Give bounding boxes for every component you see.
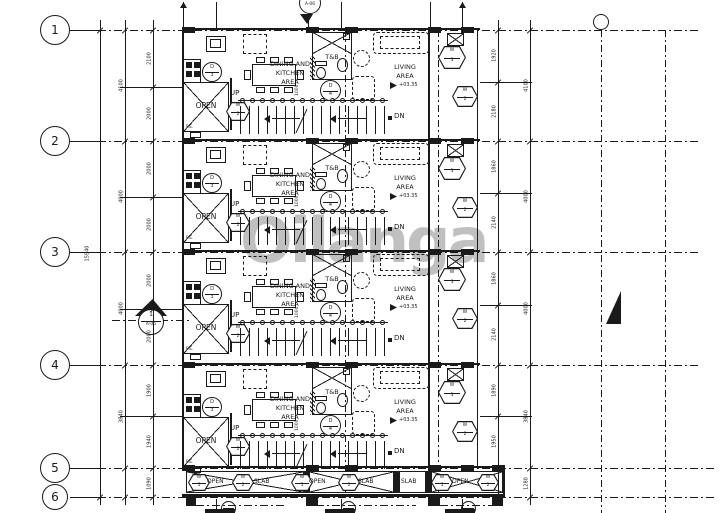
grid-bubble-label-6: 6: [42, 491, 68, 503]
unit1-down-marker: [388, 116, 392, 120]
unit3-baluster-icon: [280, 320, 285, 325]
unit4-refrigerator: [243, 369, 267, 389]
unit2-condenser-unit: [447, 144, 464, 157]
unit1-stair-tread: [258, 106, 259, 134]
unit1-baluster-icon: [270, 98, 275, 103]
strip-window-symbol-w2-letter: W: [477, 476, 499, 481]
unit2-armchair: [352, 187, 375, 211]
unit3-stair-tread: [366, 328, 367, 356]
strip-window-symbol-w5-number: 5: [431, 484, 453, 489]
dim-right-split: 1950: [493, 422, 498, 462]
unit3-door-symbol-d3-letter: D: [202, 287, 222, 292]
unit1-stair-tread: [348, 106, 349, 134]
lower-dashed-line: [316, 505, 416, 506]
unit3-baluster-icon: [290, 320, 295, 325]
strip-open-label: OPEN: [452, 479, 469, 485]
unit3-stair-tread: [258, 328, 259, 356]
unit4-baluster-icon: [300, 433, 305, 438]
unit4-toilet-bath-label: T&B: [312, 389, 352, 396]
unit2-stair-tread: [348, 217, 349, 245]
unit4-window-symbol-w2b-number: 2: [452, 433, 478, 438]
unit2-door-symbol-d3-number: 3: [202, 184, 222, 189]
unit1-living-label: LIVING: [374, 64, 436, 71]
unit3-stair-tread: [339, 328, 340, 356]
unit2-baluster-icon: [310, 209, 315, 214]
unit2-fire-exit-label: F.E.: [186, 237, 194, 242]
unit1-window-symbol-w2b-number: 2: [452, 98, 478, 103]
dimension-line: [100, 20, 101, 505]
unit4-dining-label: AREA: [246, 414, 334, 421]
lower-dashed-line: [196, 505, 286, 506]
unit2-window-symbol-w2-letter: W: [226, 215, 250, 220]
unit4-stair-tread: [285, 441, 286, 469]
unit4-stair-tread: [366, 441, 367, 469]
unit1-bed-mattress: [380, 36, 420, 49]
unit2-stair-tread: [366, 217, 367, 245]
unit2-chair: [256, 198, 265, 204]
unit2-window-symbol-w2-number: 2: [226, 224, 250, 229]
strip-open-label: OPEN: [309, 479, 326, 485]
unit2-stove-burner-icon: [194, 182, 200, 188]
unit3-baluster-icon: [340, 320, 345, 325]
unit2-dining-label: AREA: [246, 190, 334, 197]
dim-overall-left: 15940: [86, 233, 91, 273]
column-grid-line: [438, 30, 439, 497]
unit4-dining-label: DINING AND: [246, 396, 334, 403]
grid-line-stub: [70, 365, 98, 366]
unit3-baluster-icon: [380, 320, 385, 325]
strip-window-symbol-w2-number: 2: [477, 484, 499, 489]
unit1-stove-burner-icon: [186, 71, 192, 77]
unit3-window-symbol-w2b-number: 2: [452, 320, 478, 325]
unit1-down-label: DN: [394, 113, 405, 120]
unit2-stair-tread: [312, 217, 313, 245]
lower-wall-segment: [445, 509, 475, 513]
arrow-up-icon: [459, 2, 466, 8]
dim-right-total: 4000: [525, 289, 530, 329]
unit2-elevation-marker-icon: [390, 193, 397, 200]
strip-slab-wall: [182, 466, 505, 468]
dim-left-total: 4000: [120, 289, 125, 329]
dim-left-split: 2000: [148, 94, 153, 134]
floor-plan-canvas: Oilanga 123456A-061A-0515940210020004100…: [0, 0, 727, 513]
grid-line-stub: [70, 497, 98, 498]
unit4-open-label: OPEN: [183, 437, 229, 445]
dim-right-bottom: 1280: [525, 463, 530, 503]
unit4-down-marker: [388, 451, 392, 455]
unit2-baluster-icon: [240, 209, 245, 214]
unit4-door-symbol-d3-number: 3: [202, 408, 222, 413]
unit3-stair-tread: [276, 328, 277, 356]
unit2-window-symbol-w3-number: 3: [438, 170, 466, 175]
section-marker-top-sheet: A-06: [299, 3, 321, 8]
unit1-open-label: OPEN: [183, 102, 229, 110]
unit2-stove-burner-icon: [186, 182, 192, 188]
dim-left-total: 3840: [120, 397, 125, 437]
strip-outer-wall: [182, 494, 505, 497]
strip-window-symbol-w5-letter: W: [431, 476, 453, 481]
unit3-stair-arrow-stem: [272, 340, 300, 341]
unit1-stair-tread: [357, 106, 358, 134]
unit2-living-label: LIVING: [374, 175, 436, 182]
strip-slab-label: SLAB: [254, 479, 270, 485]
unit2-baluster-icon: [280, 209, 285, 214]
unit4-baluster-icon: [270, 433, 275, 438]
section-marker-top-arrow-icon: [300, 14, 313, 24]
unit4-stair-arrow-stem: [272, 453, 300, 454]
unit1-dining-label: DINING AND: [246, 61, 334, 68]
unit2-open-label: OPEN: [183, 213, 229, 221]
dim-right-split: 1890: [493, 370, 498, 410]
unit1-baluster-icon: [340, 98, 345, 103]
unit4-window-symbol-w3-number: 3: [438, 394, 466, 399]
unit3-stair-tread: [330, 328, 331, 356]
unit1-condenser-unit: [447, 33, 464, 46]
unit4-stair-tread: [240, 441, 241, 469]
unit1-dining-label: KITCHEN: [246, 70, 334, 77]
unit4-armchair: [352, 411, 375, 435]
strip-slab-label: SLAB: [358, 479, 374, 485]
unit1-baluster-icon: [290, 98, 295, 103]
unit1-baluster-icon: [250, 98, 255, 103]
dimension-line: [153, 20, 154, 505]
unit3-stove-burner-icon: [186, 293, 192, 299]
unit4-baluster-icon: [380, 433, 385, 438]
unit3-armchair: [352, 298, 375, 322]
unit4-stove-burner-icon: [194, 397, 200, 403]
grid-line-stub: [70, 30, 98, 31]
unit3-stair-tread: [375, 328, 376, 356]
unit3-elevation-label: +03.35: [399, 305, 418, 310]
unit2-down-label: DN: [394, 224, 405, 231]
unit2-side-table: [353, 161, 370, 178]
strip-window-symbol-w2-letter: W: [232, 476, 254, 481]
unit1-stove-burner-icon: [194, 62, 200, 68]
unit4-stair-tread: [258, 441, 259, 469]
unit1-stair-tread: [339, 106, 340, 134]
dim-right-total: 3840: [525, 397, 530, 437]
unit4-chair: [284, 422, 293, 428]
unit1-toilet-bath-label: T&B: [312, 54, 352, 61]
unit1-window-symbol-w2-letter: W: [226, 104, 250, 109]
unit2-elevation-label: +03.35: [399, 194, 418, 199]
unit2-window-symbol-w2b-letter: W: [452, 200, 478, 205]
section-arrow-right-icon: [606, 291, 621, 324]
unit2-stair-arrow-stem: [338, 229, 366, 230]
unit4-baluster-icon: [290, 433, 295, 438]
dim-left-split: 1940: [148, 422, 153, 462]
unit1-door-symbol-d3-letter: D: [202, 65, 222, 70]
unit1-stove-burner-icon: [186, 62, 192, 68]
lower-column-block: [186, 497, 196, 506]
unit4-stove-burner-icon: [194, 406, 200, 412]
unit3-stair-tread: [384, 328, 385, 356]
wall-extension-line: [216, 2, 217, 28]
unit3-balcony-edge: [477, 252, 478, 365]
dim-left-bottom: 1090: [148, 463, 153, 503]
unit1-stair-tread: [375, 106, 376, 134]
unit3-up-label: UP: [230, 312, 239, 319]
unit4-balcony-edge: [477, 365, 478, 468]
unit2-baluster-icon: [290, 209, 295, 214]
unit2-stair-tread: [384, 217, 385, 245]
unit2-chair: [270, 198, 279, 204]
unit4-window-symbol-w2-number: 2: [226, 448, 250, 453]
unit2-dining-label: DINING AND: [246, 172, 334, 179]
unit4-baluster-icon: [310, 433, 315, 438]
unit2-kitchen-sink-basin: [210, 150, 221, 159]
unit4-elevation-marker-icon: [390, 417, 397, 424]
unit3-down-marker: [388, 338, 392, 342]
unit1-elevation-marker-icon: [390, 82, 397, 89]
unit1-baluster-icon: [240, 98, 245, 103]
unit3-baluster-icon: [250, 320, 255, 325]
wall-extension-line: [430, 2, 431, 28]
unit4-condenser-unit: [447, 368, 464, 381]
grid-bubble-label-2: 2: [40, 135, 70, 147]
unit4-baluster-icon: [280, 433, 285, 438]
unit2-stair-tread: [240, 217, 241, 245]
column-grid-line: [601, 30, 602, 513]
unit2-baluster-icon: [340, 209, 345, 214]
unit1-stair-arrow-stem: [272, 118, 300, 119]
grid-line-stub: [70, 141, 98, 142]
unit4-living-label: LIVING: [374, 399, 436, 406]
unit1-stair-tread: [384, 106, 385, 134]
strip-window-symbol-w2-number: 2: [232, 484, 254, 489]
unit3-baluster-icon: [260, 320, 265, 325]
strip-slab-label: SLAB: [401, 479, 417, 485]
unit1-stair-tread: [276, 106, 277, 134]
unit3-door-symbol-d3-number: 3: [202, 295, 222, 300]
unit1-stair-tread: [312, 106, 313, 134]
unit3-dining-label: AREA: [246, 301, 334, 308]
unit1-window-symbol-w3-letter: W: [438, 49, 466, 54]
dim-right-split: 1860: [493, 258, 498, 298]
unit4-stair-tread: [375, 441, 376, 469]
unit4-bed-mattress: [380, 371, 420, 384]
dim-right-total: 4000: [525, 177, 530, 217]
unit4-up-label: UP: [230, 425, 239, 432]
unit2-stair-tread: [357, 217, 358, 245]
unit2-chair: [284, 198, 293, 204]
dim-left-split: 2000: [148, 149, 153, 189]
unit1-stair-tread: [240, 106, 241, 134]
unit1-side-table: [353, 50, 370, 67]
unit3-stair-tread: [249, 328, 250, 356]
unit3-baluster-icon: [310, 320, 315, 325]
unit3-fire-exit-box: [190, 354, 201, 360]
unit1-baluster-icon: [300, 98, 305, 103]
unit1-kitchen-sink-basin: [210, 39, 221, 48]
dim-left-split: 2000: [148, 260, 153, 300]
unit4-chair: [256, 422, 265, 428]
unit3-window-symbol-w2-letter: W: [226, 326, 250, 331]
grid-bubble-label-1: 1: [40, 24, 70, 36]
unit1-living-label: AREA: [374, 73, 436, 80]
unit3-stair-tread: [240, 328, 241, 356]
unit2-stove-burner-icon: [194, 173, 200, 179]
unit1-stair-break-line: [296, 109, 308, 133]
unit4-kitchen-sink-basin: [210, 374, 221, 383]
lower-wall-segment: [325, 509, 355, 513]
unit2-shower-drain: [343, 144, 350, 151]
unit3-refrigerator: [243, 256, 267, 276]
unit2-door-symbol-d3-letter: D: [202, 176, 222, 181]
strip-window-symbol-w2-number: 2: [338, 484, 360, 489]
unit1-door-symbol-d3-number: 3: [202, 73, 222, 78]
unit2-refrigerator: [243, 145, 267, 165]
dim-left-split: 2000: [148, 204, 153, 244]
dim-left-split: 2000: [148, 317, 153, 357]
unit3-chair: [256, 309, 265, 315]
lower-wall-segment: [205, 509, 235, 513]
unit2-balcony-edge: [477, 141, 478, 252]
unit3-stove-burner-icon: [194, 284, 200, 290]
unit2-dining-label: KITCHEN: [246, 181, 334, 188]
unit1-stair-tread: [366, 106, 367, 134]
dimension-line: [498, 20, 499, 505]
unit4-elevation-label: +03.35: [399, 418, 418, 423]
unit1-fire-exit-label: F.E.: [186, 126, 194, 131]
unit3-door-symbol-d4-number: 4: [320, 314, 341, 319]
unit1-window-symbol-w3-number: 3: [438, 59, 466, 64]
unit2-bed-mattress: [380, 147, 420, 160]
unit1-stair-tread: [303, 106, 304, 134]
unit4-window-symbol-w3-letter: W: [438, 384, 466, 389]
unit1-baluster-icon: [260, 98, 265, 103]
unit3-open-label: OPEN: [183, 324, 229, 332]
unit3-chair: [270, 309, 279, 315]
unit1-window-symbol-w2b-letter: W: [452, 89, 478, 94]
unit3-stove-burner-icon: [186, 284, 192, 290]
unit3-kitchen-sink-basin: [210, 261, 221, 270]
unit1-stair-tread: [285, 106, 286, 134]
unit2-stove-burner-icon: [186, 173, 192, 179]
grid-bubble-top-right: [593, 14, 609, 30]
dim-right-split: 1920: [493, 36, 498, 76]
unit2-stair-arrow-stem: [272, 229, 300, 230]
unit1-balcony-edge: [477, 30, 478, 141]
unit2-up-label: UP: [230, 201, 239, 208]
unit3-baluster-icon: [270, 320, 275, 325]
unit1-dining-label: AREA: [246, 79, 334, 86]
unit3-elevation-marker-icon: [390, 304, 397, 311]
unit4-side-table: [353, 385, 370, 402]
dim-left-split: 2100: [148, 38, 153, 78]
dim-right-split: 2140: [493, 202, 498, 242]
unit2-stair-tread: [276, 217, 277, 245]
unit4-door-symbol-d3-letter: D: [202, 400, 222, 405]
dim-left-total: 4100: [120, 66, 125, 106]
unit3-living-label: AREA: [374, 295, 436, 302]
unit3-fire-exit-label: F.E.: [186, 348, 194, 353]
strip-right-wall: [503, 466, 505, 497]
unit2-living-label: AREA: [374, 184, 436, 191]
unit2-stair-tread: [339, 217, 340, 245]
unit2-baluster-icon: [300, 209, 305, 214]
unit4-dining-label: KITCHEN: [246, 405, 334, 412]
unit3-stove-burner-icon: [194, 293, 200, 299]
unit1-stair-tread: [249, 106, 250, 134]
unit4-stair-tread: [303, 441, 304, 469]
unit1-baluster-icon: [310, 98, 315, 103]
dim-left-split: 1900: [148, 370, 153, 410]
unit3-window-symbol-w2-number: 2: [226, 335, 250, 340]
unit3-stair-tread: [285, 328, 286, 356]
grid-bubble-label-3: 3: [40, 246, 70, 258]
unit1-shower-drain: [343, 33, 350, 40]
unit4-window-symbol-w2b-letter: W: [452, 424, 478, 429]
unit3-bed-mattress: [380, 258, 420, 271]
grid-line-stub: [70, 468, 98, 469]
unit4-door-symbol-d4-number: 4: [320, 427, 341, 432]
lower-column-block: [428, 497, 440, 506]
unit3-stair-tread: [312, 328, 313, 356]
unit3-window-symbol-w3-letter: W: [438, 271, 466, 276]
unit3-condenser-unit: [447, 255, 464, 268]
unit1-armchair: [352, 76, 375, 100]
unit4-baluster-icon: [250, 433, 255, 438]
unit3-stair-tread: [321, 328, 322, 356]
unit3-living-label: LIVING: [374, 286, 436, 293]
wall-extension-line: [341, 2, 342, 28]
dim-right-split: 1860: [493, 147, 498, 187]
unit4-shower-drain: [343, 368, 350, 375]
unit4-stove-burner-icon: [186, 397, 192, 403]
unit2-stair-tread: [285, 217, 286, 245]
unit4-chair: [270, 422, 279, 428]
unit1-chair: [256, 87, 265, 93]
unit4-stair-tread: [249, 441, 250, 469]
unit1-elevation-label: +03.35: [399, 83, 418, 88]
unit2-baluster-icon: [270, 209, 275, 214]
unit4-stair-tread: [276, 441, 277, 469]
dim-right-split: 2180: [493, 91, 498, 131]
unit4-stove-burner-icon: [186, 406, 192, 412]
grid-bubble-label-4: 4: [40, 359, 70, 371]
dim-right-total: 4100: [525, 66, 530, 106]
unit3-window-symbol-w3-number: 3: [438, 281, 466, 286]
unit3-baluster-icon: [240, 320, 245, 325]
unit1-stove-burner-icon: [194, 71, 200, 77]
unit2-stair-tread: [330, 217, 331, 245]
unit3-stair-tread: [348, 328, 349, 356]
dim-left-total: 4000: [120, 177, 125, 217]
unit2-stair-tread: [303, 217, 304, 245]
unit2-baluster-icon: [380, 209, 385, 214]
unit2-door-symbol-d4-number: 4: [320, 203, 341, 208]
unit2-stair-tread: [249, 217, 250, 245]
unit3-dining-label: DINING AND: [246, 283, 334, 290]
unit2-window-symbol-w3-letter: W: [438, 160, 466, 165]
unit3-shower-drain: [343, 255, 350, 262]
unit3-side-table: [353, 272, 370, 289]
unit4-window-symbol-w2-letter: W: [226, 439, 250, 444]
unit4-baluster-icon: [260, 433, 265, 438]
unit1-up-label: UP: [230, 90, 239, 97]
unit2-stair-tread: [321, 217, 322, 245]
unit2-baluster-icon: [260, 209, 265, 214]
unit3-chair: [284, 309, 293, 315]
unit1-baluster-icon: [380, 98, 385, 103]
unit3-stair-tread: [357, 328, 358, 356]
unit2-baluster-icon: [250, 209, 255, 214]
strip-window-symbol-w2-letter: W: [338, 476, 360, 481]
strip-open-label: OPEN: [207, 479, 224, 485]
unit1-chair: [270, 87, 279, 93]
unit3-toilet-bath-label: T&B: [312, 276, 352, 283]
